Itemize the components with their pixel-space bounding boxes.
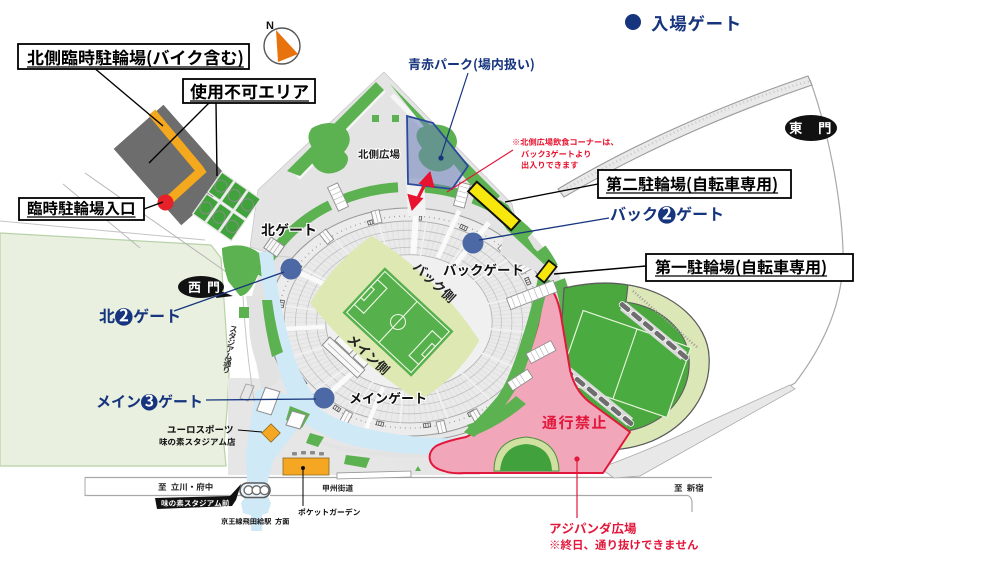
svg-text:N: N [266,20,274,32]
